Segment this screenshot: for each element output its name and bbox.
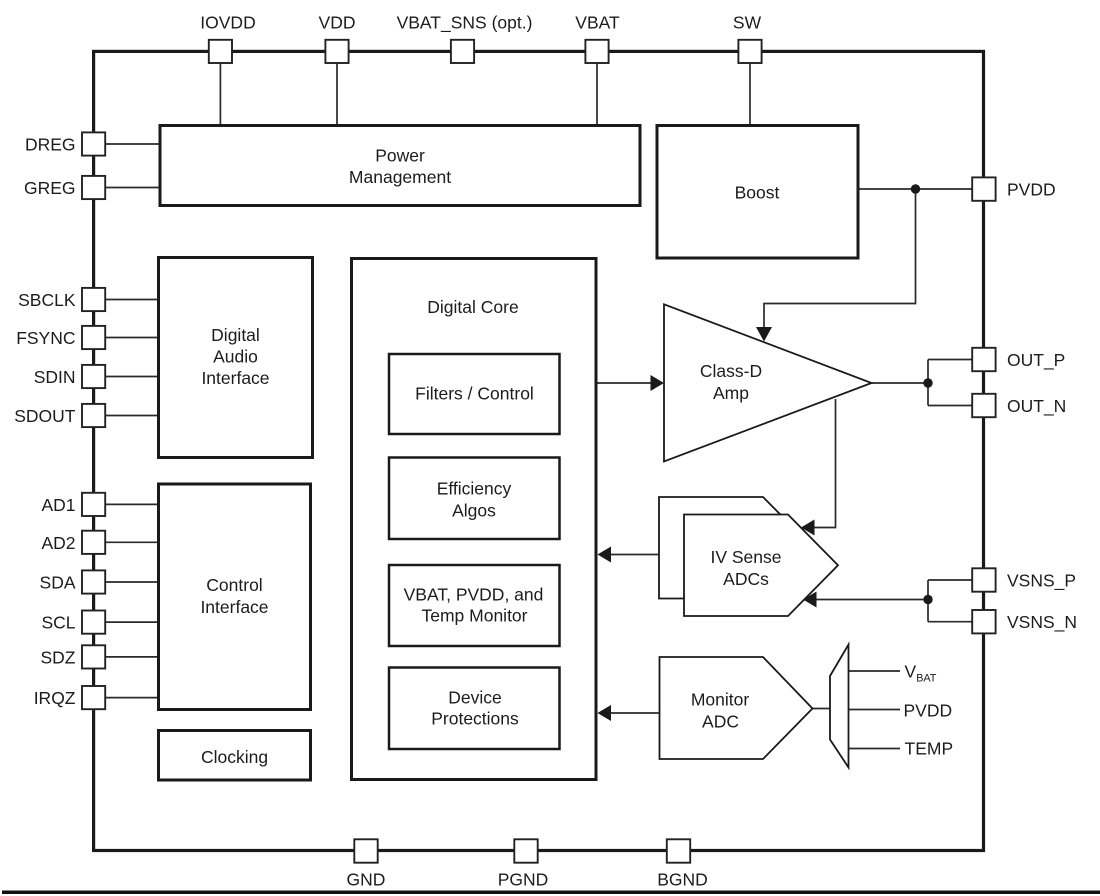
svg-text:OUT_P: OUT_P (1007, 350, 1065, 371)
svg-text:SDIN: SDIN (34, 367, 76, 387)
svg-text:SDZ: SDZ (41, 647, 76, 667)
svg-text:BGND: BGND (657, 870, 708, 890)
svg-text:Class-D: Class-D (700, 361, 762, 381)
svg-text:PGND: PGND (498, 870, 549, 890)
svg-text:DREG: DREG (25, 135, 76, 155)
svg-text:ADC: ADC (702, 712, 739, 732)
svg-text:Interface: Interface (201, 368, 269, 388)
svg-text:VBAT_SNS (opt.): VBAT_SNS (opt.) (397, 13, 533, 34)
svg-text:Digital: Digital (211, 325, 260, 345)
svg-text:Power: Power (375, 146, 425, 166)
svg-text:Management: Management (349, 167, 451, 187)
svg-text:IOVDD: IOVDD (200, 13, 255, 33)
svg-text:PVDD: PVDD (1007, 180, 1056, 200)
svg-text:Control: Control (206, 575, 262, 595)
svg-text:Clocking: Clocking (201, 747, 268, 767)
svg-text:SCL: SCL (41, 613, 75, 633)
svg-text:SBCLK: SBCLK (18, 290, 76, 310)
svg-text:Algos: Algos (452, 501, 496, 521)
svg-text:FSYNC: FSYNC (16, 328, 75, 348)
svg-text:Filters / Control: Filters / Control (415, 384, 534, 404)
svg-text:VBAT, PVDD, and: VBAT, PVDD, and (404, 585, 544, 605)
svg-text:VSNS_N: VSNS_N (1007, 612, 1077, 633)
svg-text:VSNS_P: VSNS_P (1007, 571, 1076, 592)
svg-text:SDOUT: SDOUT (14, 406, 76, 426)
svg-text:Efficiency: Efficiency (437, 479, 512, 499)
svg-text:AD1: AD1 (41, 495, 75, 515)
svg-text:VDD: VDD (319, 13, 356, 33)
svg-text:IV Sense: IV Sense (710, 547, 781, 567)
svg-text:SDA: SDA (40, 573, 76, 593)
svg-text:ADCs: ADCs (723, 569, 769, 589)
svg-text:OUT_N: OUT_N (1007, 396, 1066, 417)
svg-text:SW: SW (733, 13, 762, 33)
svg-text:TEMP: TEMP (905, 739, 954, 759)
svg-text:Device: Device (448, 688, 502, 708)
svg-text:Amp: Amp (713, 383, 749, 403)
svg-text:Protections: Protections (431, 709, 519, 729)
svg-text:PVDD: PVDD (904, 701, 953, 721)
svg-text:VBAT: VBAT (575, 13, 620, 33)
svg-text:Digital Core: Digital Core (427, 297, 518, 317)
svg-text:AD2: AD2 (41, 533, 75, 553)
svg-text:Monitor: Monitor (691, 690, 750, 710)
svg-text:Temp Monitor: Temp Monitor (421, 606, 527, 626)
svg-text:Audio: Audio (213, 347, 258, 367)
svg-text:IRQZ: IRQZ (34, 688, 76, 708)
svg-text:Boost: Boost (735, 183, 780, 203)
svg-text:GND: GND (347, 870, 386, 890)
svg-text:GREG: GREG (24, 178, 76, 198)
svg-text:Interface: Interface (200, 597, 268, 617)
